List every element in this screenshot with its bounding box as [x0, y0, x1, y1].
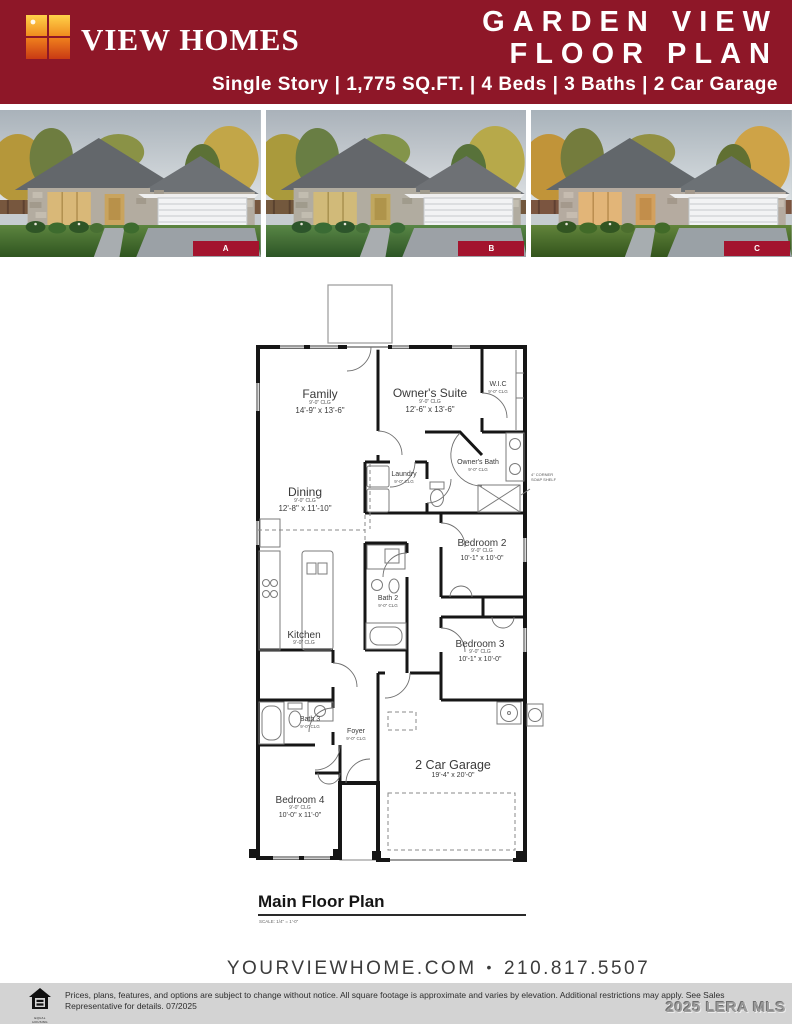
house-rendering — [266, 110, 527, 257]
house-rendering — [531, 110, 792, 257]
disclaimer-text: Prices, plans, features, and options are… — [65, 987, 724, 1011]
house-rendering — [0, 110, 261, 257]
room-label-laundry: Laundry 9'-0" CLG — [391, 471, 416, 484]
equal-housing-caption: EQUAL HOUSING OPPORTUNITY — [27, 1016, 53, 1024]
room-label-owners-suite: Owner's Suite 9'-0" CLG 12'-6" x 13'-6" — [393, 387, 467, 415]
equal-housing-block: EQUAL HOUSING OPPORTUNITY — [27, 987, 53, 1024]
plan-scale-note: SCALE: 1/4" = 1'-0" — [259, 919, 298, 924]
room-label-bedroom-3: Bedroom 3 9'-0" CLG 10'-1" x 10'-0" — [456, 639, 505, 664]
room-label-bath-2: Bath 2 9'-0" CLG — [378, 595, 398, 608]
elevation-photo-c: C — [531, 110, 792, 257]
header-banner: VIEW HOMES GARDEN VIEW FLOOR PLAN Single… — [0, 0, 792, 104]
room-label-garage: 2 Car Garage 19'-4" x 20'-0" — [415, 758, 491, 780]
title-line-2: FLOOR PLAN — [212, 38, 778, 70]
separator-dot: • — [477, 959, 504, 975]
equal-housing-icon — [28, 987, 52, 1011]
mls-watermark: 2025 LERA MLS — [666, 999, 786, 1016]
spec-subtitle: Single Story | 1,775 SQ.FT. | 4 Beds | 3… — [212, 74, 778, 96]
room-label-wic: W.I.C 9'-0" CLG — [488, 381, 507, 394]
elevation-photo-b: B — [266, 110, 527, 257]
room-label-dining: Dining 9'-0" CLG 12'-8" x 11'-10" — [278, 486, 331, 514]
plan-title: Main Floor Plan — [258, 892, 385, 912]
ac-unit — [527, 704, 543, 726]
shower-shelf-annotation: 4" CORNER SOAP SHELF — [531, 473, 556, 483]
window-logo-icon — [25, 14, 71, 65]
room-label-bedroom-4: Bedroom 4 9'-0" CLG 10'-0" x 11'-0" — [276, 795, 325, 820]
flyer-page: VIEW HOMES GARDEN VIEW FLOOR PLAN Single… — [0, 0, 792, 1024]
phone-number: 210.817.5507 — [504, 958, 650, 979]
elevation-photo-a: A — [0, 110, 261, 257]
room-label-owners-bath: Owner's Bath 9'-0" CLG — [457, 459, 499, 472]
room-label-bath-3: Bath 3 9'-0" CLG — [300, 716, 320, 729]
flyer-title: GARDEN VIEW FLOOR PLAN Single Story | 1,… — [212, 6, 778, 96]
room-label-kitchen: Kitchen 9'-0" CLG — [287, 630, 320, 647]
title-line-1: GARDEN VIEW — [212, 6, 778, 38]
room-label-bedroom-2: Bedroom 2 9'-0" CLG 10'-1" x 10'-0" — [458, 538, 507, 563]
plan-title-underline — [258, 914, 526, 916]
elevation-photo-strip: A B C — [0, 110, 792, 257]
room-label-foyer: Foyer 9'-0" CLG — [346, 728, 365, 741]
room-label-family: Family 9'-0" CLG 14'-9" x 13'-6" — [295, 388, 344, 416]
photo-label-c: C — [724, 241, 790, 256]
website-text: YOURVIEWHOME.COM — [227, 958, 477, 979]
contact-line: YOURVIEWHOME.COM•210.817.5507 — [0, 958, 792, 980]
photo-label-b: B — [458, 241, 524, 256]
photo-label-a: A — [193, 241, 259, 256]
